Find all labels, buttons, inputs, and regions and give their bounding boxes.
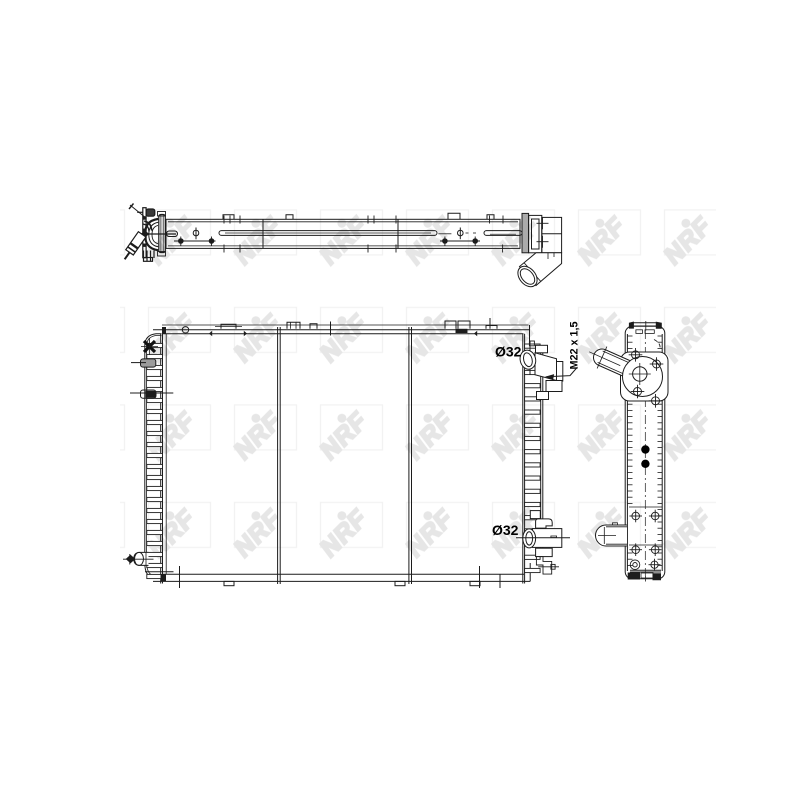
- svg-text:M22 x 1,5: M22 x 1,5: [569, 321, 581, 369]
- svg-text:Ø32: Ø32: [495, 344, 522, 360]
- svg-text:Ø32: Ø32: [492, 522, 519, 538]
